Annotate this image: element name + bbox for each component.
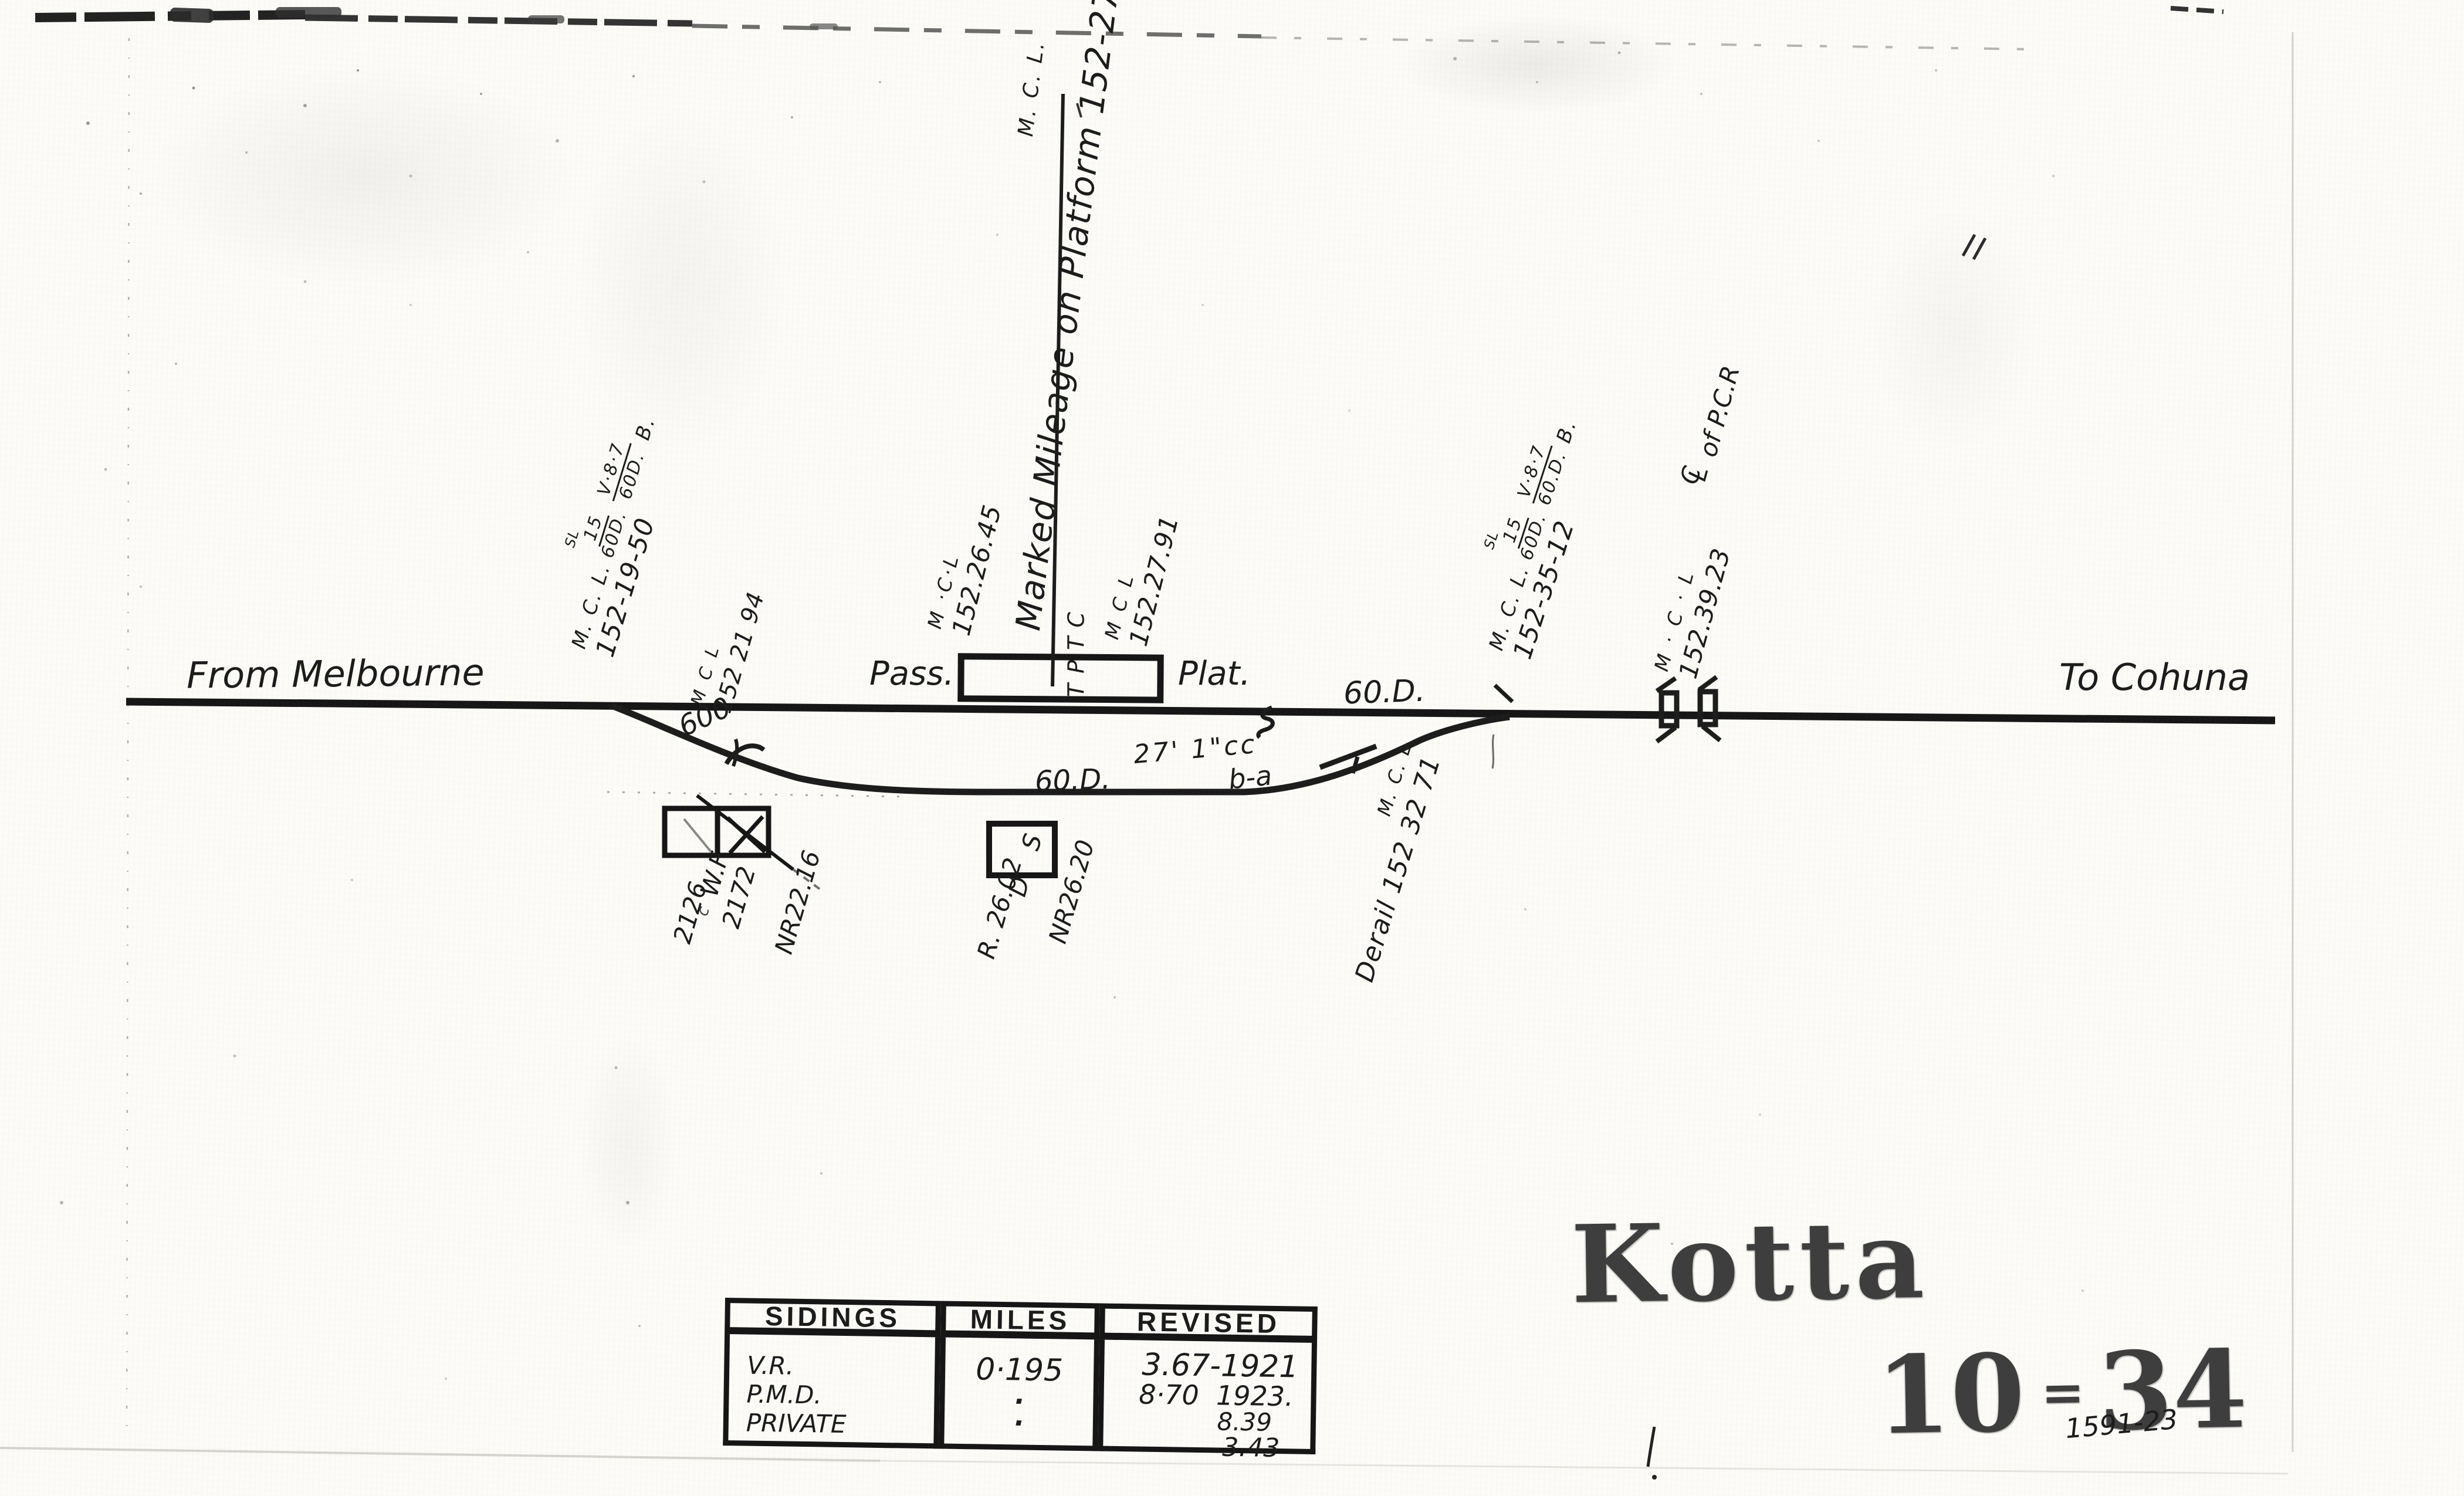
sidings-table-body: V.R. P.M.D. PRIVATE 0·195 · · 3.67-1921 … — [723, 1334, 1317, 1454]
platform-code-letter: T — [1066, 678, 1088, 703]
platform-code-letter: P — [1066, 654, 1088, 680]
col-header-sidings: SIDINGS — [725, 1298, 941, 1337]
diagram-plate-number: 10 = 34 — [1875, 1326, 2248, 1458]
stray-tick-marks — [1963, 235, 1985, 259]
revision-date: 3.67-1921 — [1142, 1350, 1299, 1383]
level-crossing-symbol — [1657, 677, 1720, 742]
levers-label: b-a — [1227, 759, 1273, 795]
main-grade-label: 60.D. — [1343, 673, 1426, 712]
miles-value: · — [1013, 1416, 1024, 1432]
scan-edge-bottom — [0, 1448, 880, 1461]
platform-code-letter: C — [1066, 607, 1088, 633]
revised-column: 3.67-1921 8·70 1923. 8.39 3.43 — [1098, 1339, 1317, 1454]
sidings-column: V.R. P.M.D. PRIVATE — [723, 1334, 940, 1448]
sl-label: SL — [563, 528, 581, 549]
sidings-table: SIDINGS MILES REVISED V.R. P.M.D. PRIVAT… — [723, 1298, 1318, 1454]
miles-value: 0·195 — [976, 1352, 1064, 1388]
station-name-title: Kotta — [1571, 1197, 1931, 1328]
main-line-track — [126, 702, 2275, 720]
table-row-label: PRIVATE — [746, 1409, 934, 1440]
stray-pen-mark — [1648, 1427, 1654, 1467]
scan-noise-top-band — [35, 7, 2223, 49]
col-header-revised: REVISED — [1099, 1303, 1318, 1342]
platform-code-tptc: C T P T — [1064, 609, 1089, 701]
signal-tail: B. — [632, 414, 658, 442]
revision-date: 3.43 — [1222, 1434, 1280, 1461]
stray-pen-dot — [1652, 1475, 1657, 1480]
direction-from-melbourne: From Melbourne — [187, 651, 485, 696]
points-mark-right — [1495, 685, 1512, 702]
scan-edge-bottom-right — [880, 1461, 2288, 1474]
miles-column: 0·195 · · — [939, 1337, 1099, 1451]
scan-fold-line — [127, 38, 129, 1440]
loop-grade-label: 60.D. — [1034, 763, 1111, 798]
plate-left: 10 — [1875, 1330, 2026, 1458]
direction-to-cohuna: To Cohuna — [2059, 656, 2250, 699]
platform-rect — [961, 656, 1160, 700]
revision-date: 8.39 — [1217, 1409, 1272, 1435]
stray-squiggle — [1492, 735, 1494, 769]
scan-noise-dotted-line — [607, 792, 906, 797]
platform-code-letter: T — [1066, 631, 1088, 656]
col-header-miles: MILES — [940, 1301, 1100, 1339]
revision-date: 8·70 1923. — [1139, 1381, 1294, 1411]
table-row-label: P.M.D. — [746, 1380, 935, 1412]
scanned-track-diagram-kotta: From Melbourne To Cohuna Pass. Plat. C T… — [0, 0, 2464, 1496]
platform-plat-label: Plat. — [1178, 655, 1250, 693]
platform-pass-label: Pass. — [869, 655, 954, 693]
table-row-label: V.R. — [747, 1351, 935, 1383]
